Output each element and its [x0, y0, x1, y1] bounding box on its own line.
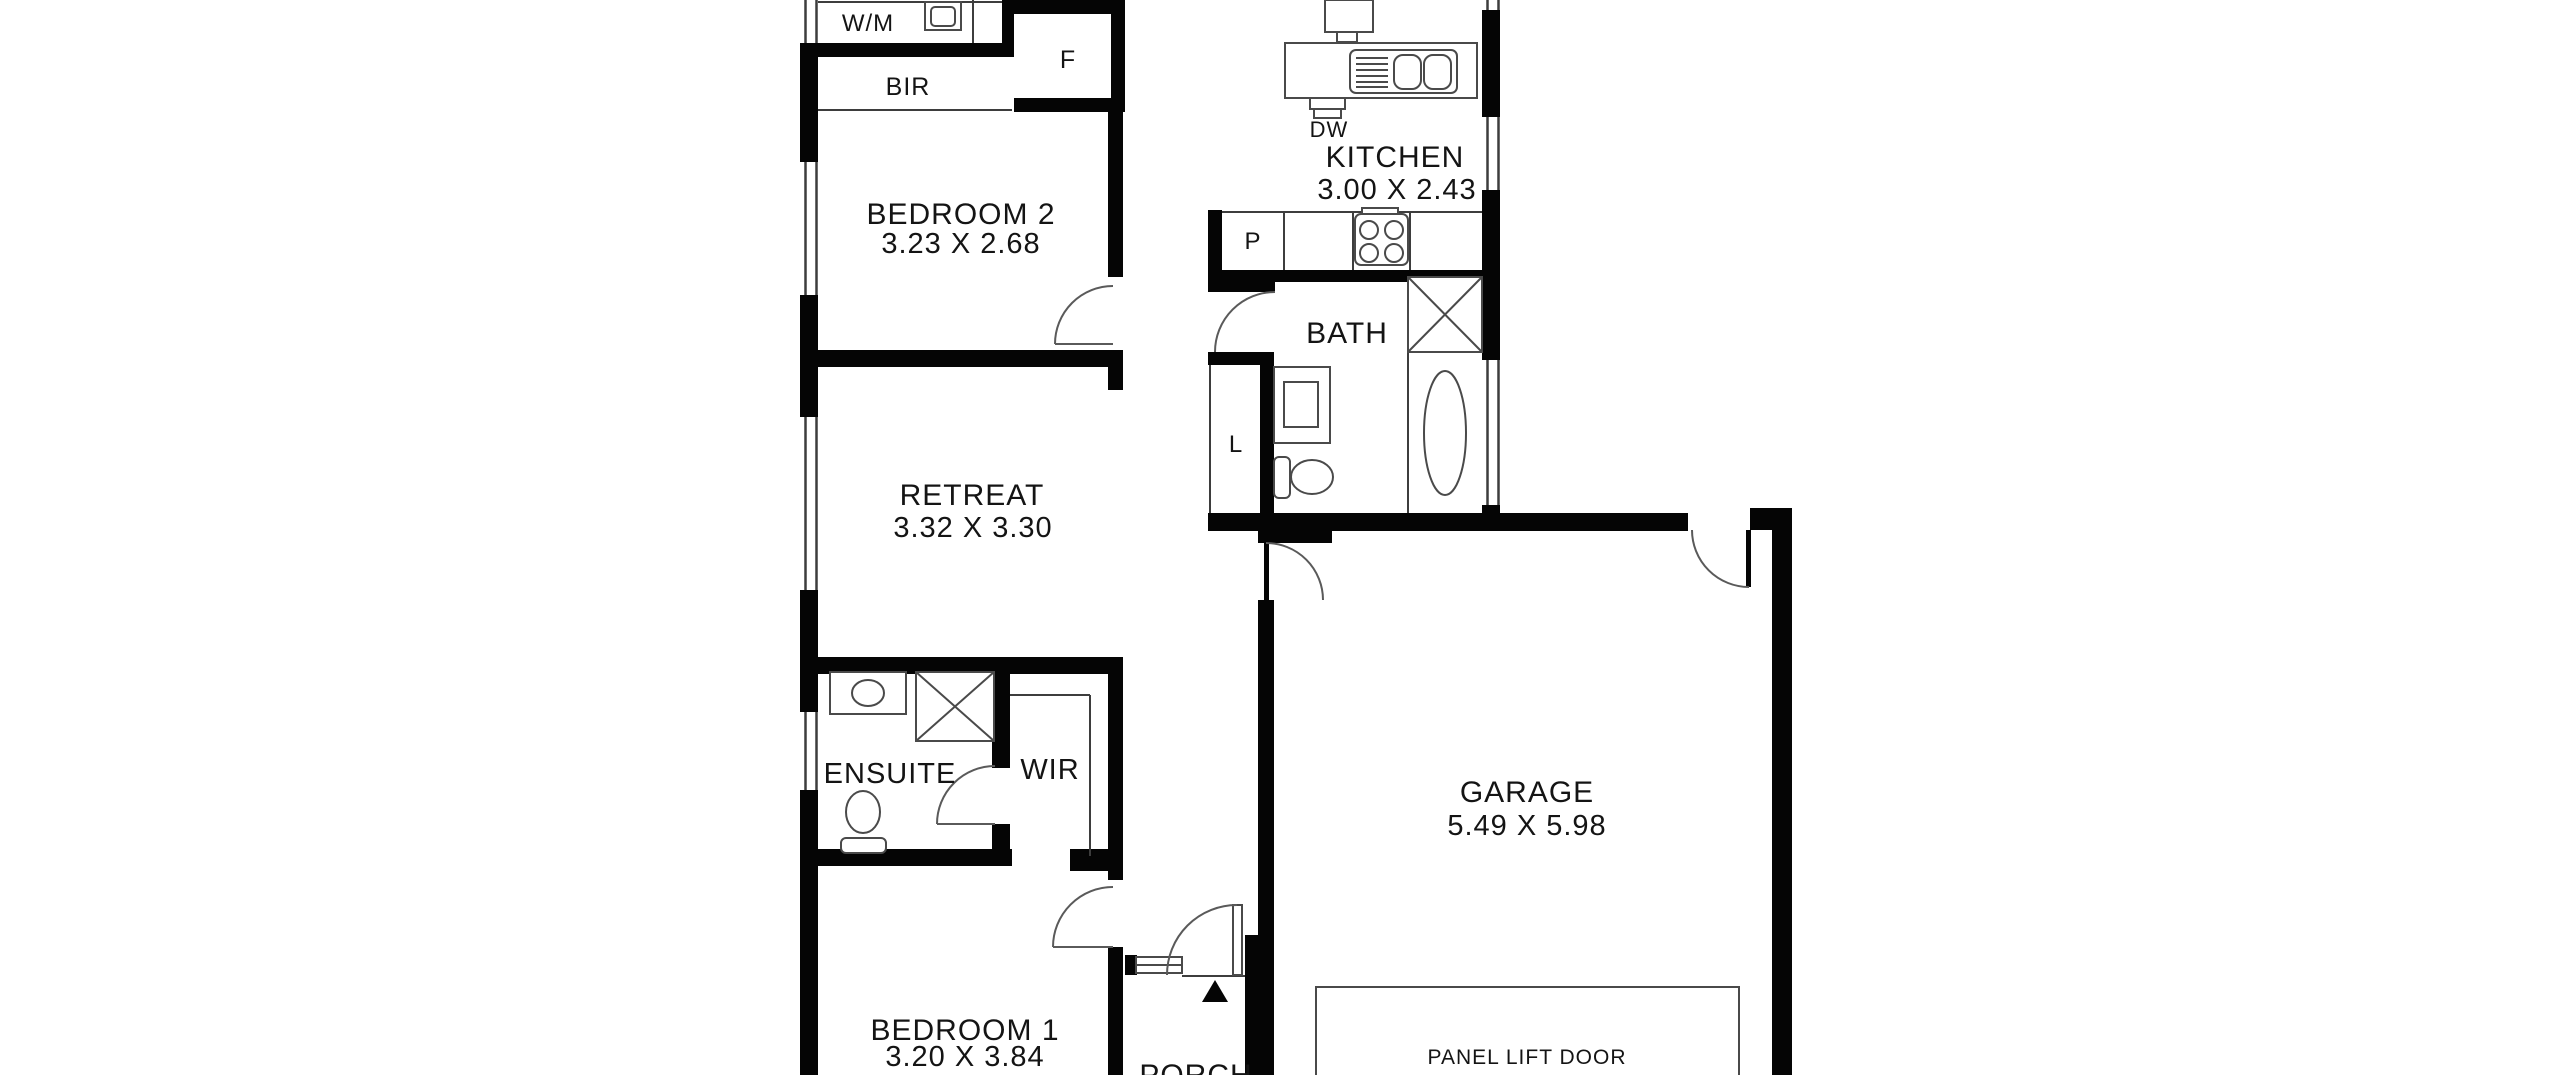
door-leaf-garage-hall	[1264, 543, 1269, 600]
wall-segment	[1258, 531, 1332, 543]
room-labels: W/M BIR F DW P L KITCHEN 3.00 X 2.43 BED…	[824, 10, 1627, 1075]
bath-shower-icon	[1408, 277, 1482, 352]
kitchen-cabinet-icon	[1325, 0, 1373, 42]
door-arcs	[937, 286, 1749, 975]
wall-segment	[800, 590, 818, 712]
door-leaf-garage-rear	[1746, 530, 1751, 587]
floorplan-page: W/M BIR F DW P L KITCHEN 3.00 X 2.43 BED…	[0, 0, 2560, 1075]
front-door-leaf	[1233, 905, 1242, 975]
wall-segment	[1014, 0, 1125, 14]
ensuite-vanity-icon	[830, 672, 906, 714]
label-fridge: F	[1060, 46, 1076, 74]
window-retreat	[806, 417, 817, 590]
room-label-wir: WIR	[1020, 754, 1079, 786]
ensuite-shower-icon	[916, 672, 994, 741]
entry-steps-icon	[1136, 957, 1182, 973]
wall-segment	[1108, 947, 1123, 1075]
window-kitchen-top	[1488, 0, 1499, 10]
room-dims-kitchen: 3.00 X 2.43	[1317, 174, 1476, 206]
wall-segment	[1111, 0, 1125, 112]
wall-segment	[800, 350, 1115, 367]
window-bedroom2	[806, 162, 817, 295]
kitchen-sink-icon	[1285, 43, 1477, 98]
wall-segment	[1002, 0, 1014, 43]
room-dims-bedroom1: 3.20 X 3.84	[885, 1041, 1044, 1073]
bath-vanity-icon	[1274, 367, 1330, 443]
wall-segment	[800, 43, 1014, 57]
room-label-bath: BATH	[1306, 317, 1388, 350]
label-pantry: P	[1244, 228, 1261, 255]
wall-segment	[1070, 849, 1115, 871]
door-arc-garage-hall	[1266, 543, 1323, 600]
door-arc-bedroom1	[1053, 887, 1113, 947]
label-built-in-robe: BIR	[886, 73, 931, 101]
label-washing-machine: W/M	[842, 10, 894, 37]
wall-segment	[800, 43, 818, 162]
wall-segment	[1108, 98, 1123, 277]
window-ensuite	[806, 712, 817, 790]
room-label-ensuite: ENSUITE	[824, 758, 957, 790]
label-dishwasher: DW	[1310, 117, 1349, 142]
floor-plan: W/M BIR F DW P L KITCHEN 3.00 X 2.43 BED…	[0, 0, 2560, 1075]
window-bath-east	[1488, 360, 1499, 505]
laundry-trough-icon	[925, 2, 961, 30]
door-arc-garage-rear	[1692, 530, 1749, 587]
room-label-garage: GARAGE	[1460, 776, 1594, 809]
door-arc-bath	[1215, 292, 1275, 352]
wall-segment	[1108, 657, 1123, 880]
room-dims-garage: 5.49 X 5.98	[1447, 810, 1606, 842]
window-laundry	[806, 0, 817, 43]
room-label-retreat: RETREAT	[900, 479, 1045, 512]
wall-segment	[992, 824, 1010, 852]
entry-arrow-icon	[1202, 980, 1228, 1002]
wall-segment	[800, 790, 818, 1075]
room-label-bedroom2: BEDROOM 2	[866, 198, 1055, 231]
wall-segment	[1482, 190, 1500, 360]
room-dims-retreat: 3.32 X 3.30	[893, 512, 1052, 544]
wall-segment	[1208, 513, 1688, 531]
wall-segment	[1245, 935, 1274, 1075]
door-arc-bedroom2	[1055, 286, 1113, 344]
cooktop-icon	[1355, 208, 1408, 265]
window-kitchen-east	[1488, 117, 1499, 190]
wall-segment	[1772, 508, 1792, 1075]
room-label-kitchen: KITCHEN	[1326, 141, 1465, 174]
bathtub-icon	[1424, 371, 1466, 495]
ensuite-toilet-icon	[841, 791, 886, 853]
room-label-porch: PORCH	[1139, 1059, 1252, 1075]
label-panel-lift-door: PANEL LIFT DOOR	[1428, 1046, 1627, 1069]
label-linen: L	[1229, 431, 1243, 458]
bath-toilet-icon	[1274, 457, 1333, 498]
dishwasher-icon	[1310, 98, 1345, 118]
wall-segment	[1260, 352, 1274, 513]
room-dims-bedroom2: 3.23 X 2.68	[881, 228, 1040, 260]
wall-segment	[1482, 10, 1500, 117]
